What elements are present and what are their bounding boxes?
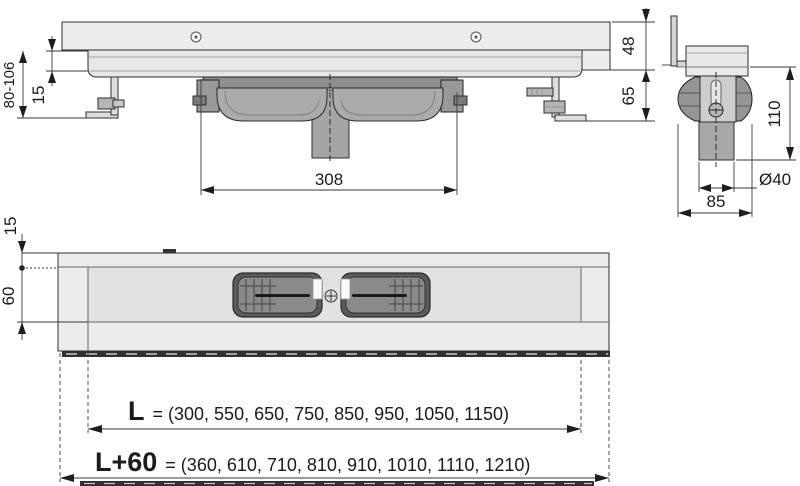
trap-wing-right (736, 77, 752, 121)
mounting-bracket-right (527, 77, 586, 121)
dim-arrow (201, 186, 214, 194)
length-L60-prefix: L+60 (95, 447, 157, 477)
dim-arrow (19, 51, 27, 63)
side-trap-body (678, 76, 752, 122)
drawing-canvas: 15 80-106 48 65 (0, 0, 800, 486)
dim-label-trap-width: 308 (315, 170, 343, 189)
dim-arrow (786, 67, 794, 80)
channel-body (88, 50, 582, 77)
dim-label-length-L: L= (300, 550, 650, 750, 850, 950, 1050, … (128, 396, 509, 426)
length-L-prefix: L (128, 396, 145, 426)
dimension-length-L: L= (300, 550, 650, 750, 850, 950, 1050, … (88, 353, 581, 433)
dim-arrow (642, 9, 650, 22)
dim-arrow (595, 474, 609, 482)
dim-arrow (18, 322, 26, 334)
dim-arrow (567, 425, 581, 433)
dim-arrow (88, 425, 102, 433)
dim-arrow (642, 70, 650, 82)
side-channel-profile (677, 46, 748, 76)
insert-notch (313, 279, 322, 299)
front-view: 15 80-106 48 65 (1, 8, 655, 195)
dim-arrow (678, 209, 691, 217)
dim-label-install-height: 110 (765, 100, 784, 127)
technical-drawing: 15 80-106 48 65 (0, 0, 800, 486)
side-view: 110 Ø40 85 (662, 16, 796, 217)
dim-arrow (786, 147, 794, 160)
dim-label-height-adjust: 80-106 (1, 62, 18, 109)
wall-edge-hatch (62, 351, 610, 357)
mounting-bracket-left (86, 77, 124, 118)
dim-label-length-L60: L+60= (360, 610, 710, 810, 910, 1010, 11… (95, 447, 530, 477)
dim-label-flange-depth: 15 (1, 217, 20, 236)
dim-arrow (48, 39, 56, 51)
screw-hole-left (191, 32, 201, 42)
length-L-values: = (300, 550, 650, 750, 850, 950, 1050, 1… (153, 404, 509, 424)
floor-edge-hatch (80, 481, 594, 486)
dimension-height-adjust: 80-106 (1, 51, 95, 118)
dim-arrow (444, 186, 457, 194)
dim-arrow (19, 106, 27, 118)
dim-arrow (48, 71, 56, 83)
trap-wing-left (678, 77, 700, 121)
dim-label-trap-depth: 65 (619, 87, 638, 106)
dim-arrow (642, 108, 650, 121)
screw-hole-right (471, 32, 481, 42)
dim-label-edge-offset: 15 (29, 86, 48, 105)
dim-label-outlet-diameter: Ø40 (759, 170, 791, 189)
dim-arrow (739, 209, 752, 217)
trap-tub-left (217, 88, 327, 121)
dim-label-channel-width: 60 (0, 287, 18, 306)
center-screw (325, 290, 337, 302)
trap-assembly (193, 74, 467, 163)
trap-tub-right (333, 88, 443, 121)
dim-arrow (699, 184, 711, 192)
dim-label-channel-height: 48 (619, 37, 638, 56)
dim-arrow (722, 184, 734, 192)
drain-insert-left (233, 273, 322, 317)
dimension-flange-depth: 15 (1, 217, 58, 271)
insert-notch (341, 279, 350, 299)
drain-insert-right (341, 273, 430, 317)
dim-arrow (18, 241, 26, 253)
dim-arrow (60, 474, 74, 482)
dim-label-body-width: 85 (707, 192, 726, 211)
flange-screw-slot (163, 249, 176, 253)
plan-view: 15 60 L= (300, 550, 650, 750, 850, 950, … (0, 217, 610, 486)
outlet-pipe-side (699, 122, 734, 160)
dimension-outlet-diameter: Ø40 (699, 162, 791, 192)
length-L60-values: = (360, 610, 710, 810, 910, 1010, 1110, … (165, 455, 530, 475)
